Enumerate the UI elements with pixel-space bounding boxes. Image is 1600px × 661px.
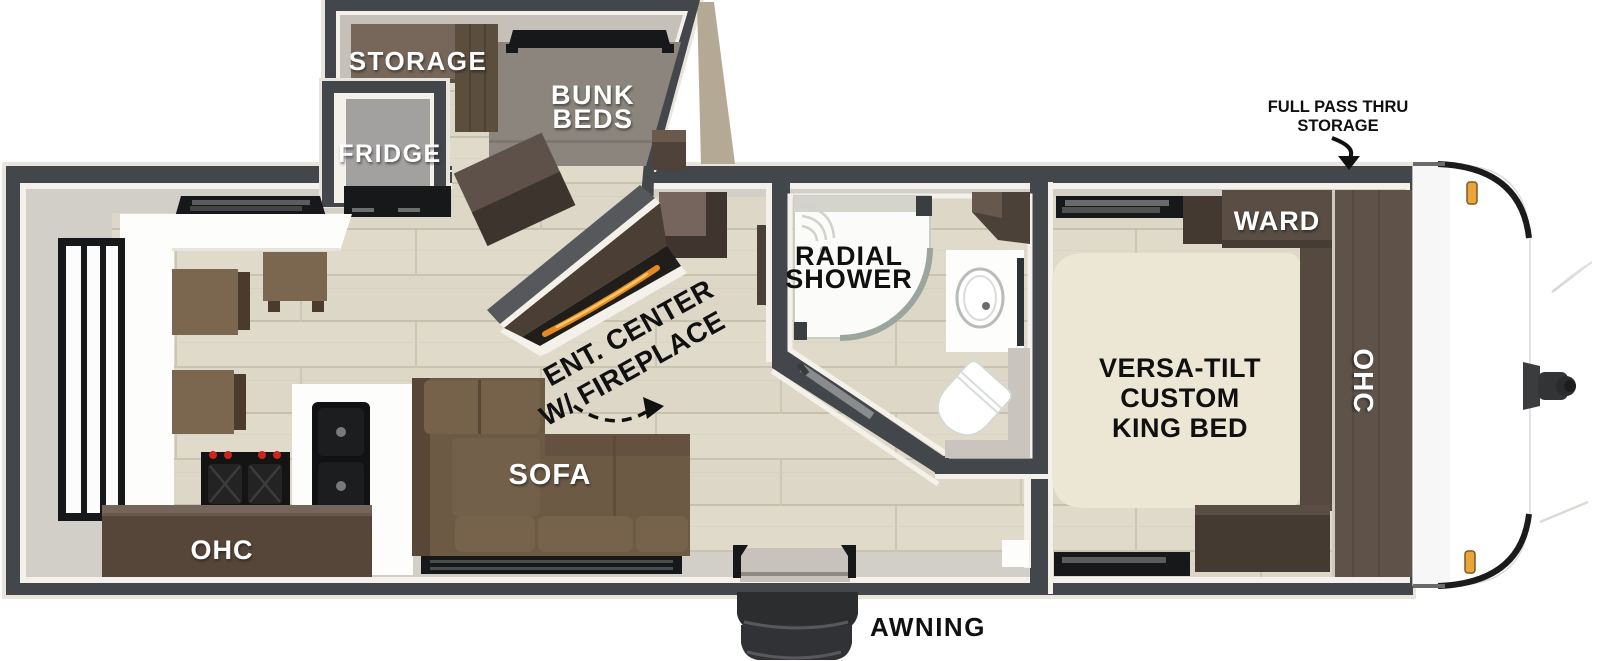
svg-text:SHOWER: SHOWER (785, 264, 913, 294)
svg-text:STORAGE: STORAGE (349, 46, 488, 76)
svg-text:SOFA: SOFA (509, 459, 592, 491)
svg-text:BEDS: BEDS (552, 104, 633, 134)
svg-text:AWNING: AWNING (870, 612, 986, 642)
svg-text:WARD: WARD (1234, 206, 1321, 236)
svg-text:FULL PASS THRU: FULL PASS THRU (1268, 98, 1409, 116)
svg-text:STORAGE: STORAGE (1297, 117, 1378, 135)
svg-text:OHC: OHC (1348, 348, 1379, 413)
svg-text:VERSA-TILT: VERSA-TILT (1099, 353, 1261, 383)
svg-text:OHC: OHC (191, 535, 254, 565)
svg-text:CUSTOM: CUSTOM (1120, 383, 1240, 413)
svg-text:KING BED: KING BED (1112, 413, 1248, 443)
svg-text:FRIDGE: FRIDGE (338, 140, 441, 168)
